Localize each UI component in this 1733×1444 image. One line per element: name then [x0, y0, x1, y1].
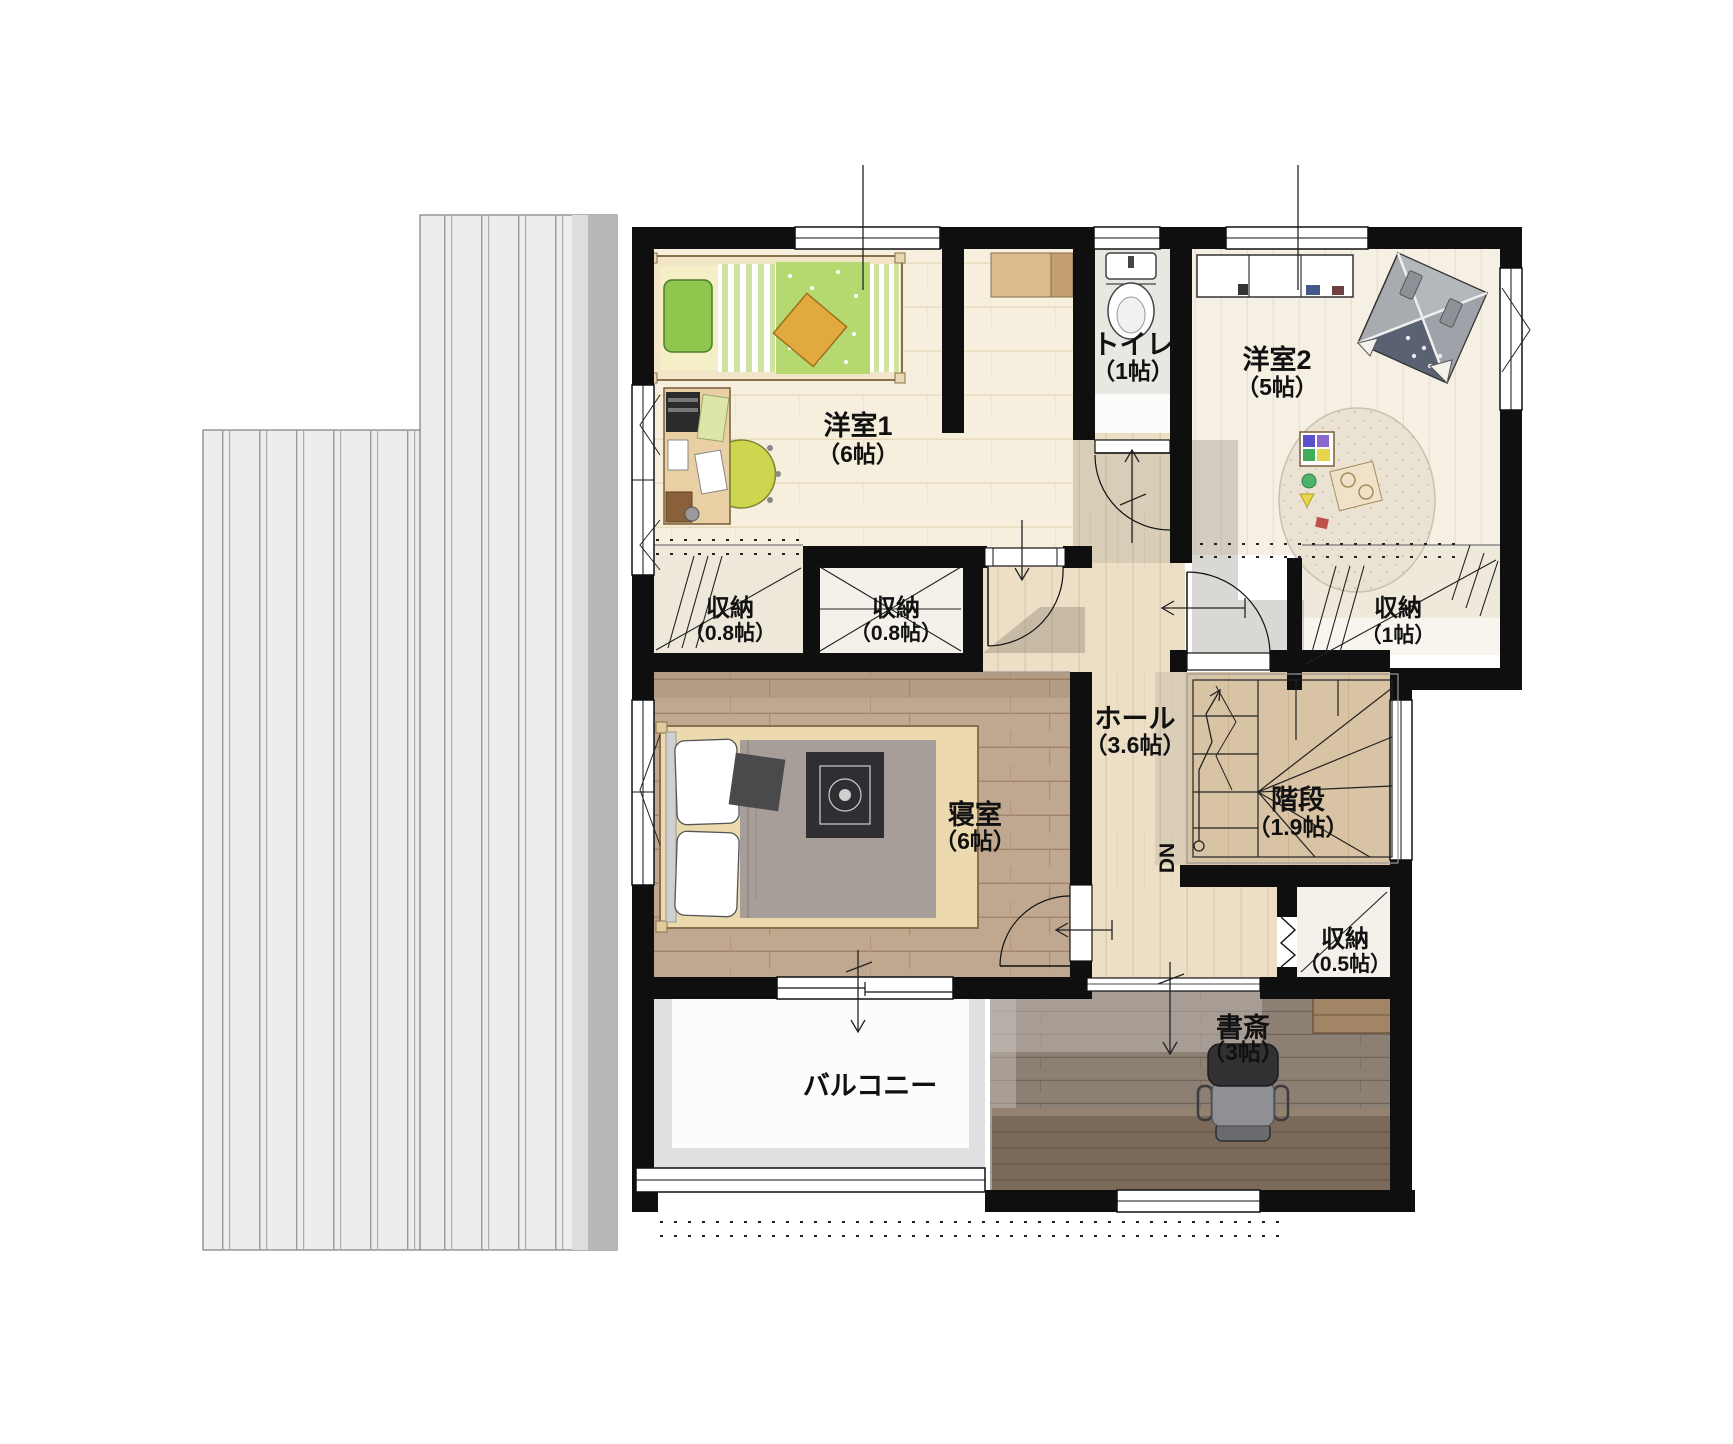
study-entry-sill	[1087, 978, 1260, 991]
wall-balcony-left	[632, 999, 654, 1192]
label-closet-b-size: （0.8帖）	[850, 621, 942, 645]
play-rug	[1279, 408, 1435, 592]
label-closet-d-size: （0.5帖）	[1299, 952, 1391, 976]
label-toilet: トイレ	[1093, 330, 1174, 360]
green-pillow	[664, 280, 712, 352]
decor-cushion	[806, 752, 884, 838]
toilet-fixture	[1106, 253, 1156, 339]
roof	[203, 215, 617, 1250]
label-yoshitsu2: 洋室2	[1242, 344, 1311, 375]
wall-top	[632, 227, 1522, 249]
window-toilet-top	[1094, 227, 1160, 249]
window-yoshitsu1-left	[632, 385, 654, 575]
pillow	[675, 831, 740, 917]
striped-sheet	[718, 264, 776, 372]
floorplan-drawing: 洋室1 （6帖） トイレ （1帖） 洋室2 （5帖） 収納 （0.8帖） 収納 …	[0, 0, 1733, 1444]
wall-toilet-right	[1170, 249, 1192, 563]
label-yoshitsu2-size: （5帖）	[1236, 374, 1318, 400]
window-study-bottom	[1117, 1190, 1260, 1212]
wall-yoshitsu1-right	[942, 249, 964, 433]
label-yoshitsu1: 洋室1	[823, 410, 892, 441]
label-closet-b: 収納	[872, 594, 920, 622]
roof-shade-light	[572, 215, 588, 1250]
label-stairs-size: （1.9帖）	[1248, 814, 1349, 840]
label-hall-size: （3.6帖）	[1085, 732, 1186, 758]
label-balcony: バルコニー	[803, 1071, 937, 1101]
window-bedroom-left	[632, 700, 654, 885]
window-balcony-slider	[777, 977, 953, 999]
double-bed	[656, 722, 978, 932]
balcony-railing	[636, 1168, 985, 1192]
dark-throw-pillow	[729, 753, 786, 811]
toy-hexagon	[1302, 474, 1316, 488]
wall-closet-c-left	[1287, 558, 1302, 690]
yoshitsu1-nook-floor	[983, 433, 1073, 567]
label-stairs-dn: DN	[1156, 843, 1179, 873]
window-yoshitsu2-top	[1226, 227, 1368, 249]
pillow	[675, 739, 740, 825]
label-bedroom-size: （6帖）	[934, 828, 1016, 854]
label-closet-d: 収納	[1321, 925, 1369, 953]
label-closet-c-size: （1帖）	[1361, 623, 1436, 647]
label-closet-c: 収納	[1374, 594, 1422, 622]
label-yoshitsu1-size: （6帖）	[817, 441, 899, 467]
window-yoshitsu1-top	[795, 227, 940, 249]
label-closet-a: 収納	[706, 594, 754, 622]
striped-sheet-foot	[870, 264, 900, 372]
label-bedroom: 寝室	[948, 799, 1002, 830]
single-bed	[647, 253, 905, 383]
desk-note	[697, 394, 729, 441]
label-study-size: （3帖）	[1202, 1039, 1284, 1065]
wall-closet-d-top	[1277, 865, 1412, 887]
label-hall: ホール	[1095, 704, 1176, 734]
floorplan-canvas: 洋室1 （6帖） トイレ （1帖） 洋室2 （5帖） 収納 （0.8帖） 収納 …	[0, 0, 1733, 1444]
wall-bedroom-right	[1070, 672, 1092, 885]
window-stairs-right	[1390, 700, 1412, 860]
label-closet-a-size: （0.8帖）	[684, 621, 776, 645]
label-toilet-size: （1帖）	[1092, 358, 1174, 384]
door-closet-d-bifold	[1281, 917, 1295, 967]
counter	[991, 253, 1073, 297]
roof-shade-dark	[588, 215, 617, 1250]
wall-shelf	[1197, 255, 1353, 297]
label-stairs: 階段	[1271, 785, 1325, 815]
